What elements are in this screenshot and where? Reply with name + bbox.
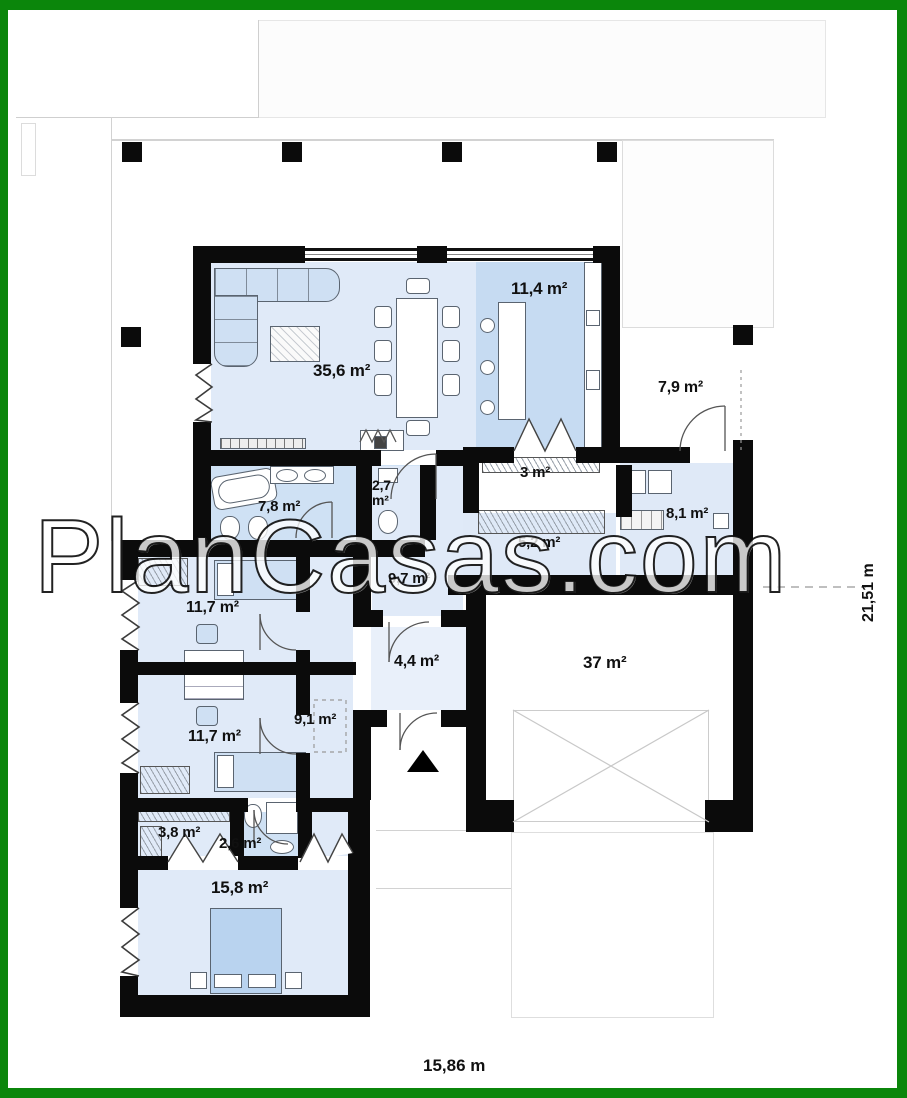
wall — [296, 650, 310, 715]
kitchen-counter — [584, 262, 602, 454]
wall — [134, 662, 356, 675]
kitchen-sink — [586, 310, 600, 326]
wall — [466, 800, 514, 832]
sideboard — [220, 438, 306, 449]
wall — [120, 773, 138, 908]
dryer — [648, 470, 672, 494]
nightstand — [285, 972, 302, 989]
desk-chair — [196, 706, 218, 726]
room-area-label-porch: 7,9 m² — [658, 380, 703, 397]
desk — [184, 650, 244, 700]
terrace-pillar — [442, 142, 462, 162]
room-area-label-vestibule: 4,4 m² — [394, 654, 439, 671]
bar-stool — [480, 318, 495, 333]
wall — [120, 995, 370, 1017]
room-floor — [312, 812, 348, 856]
room-area-label-bedroom2: 11,7 m² — [188, 729, 241, 746]
dimension-line-bottom — [118, 1092, 798, 1094]
nightstand — [190, 972, 207, 989]
window — [447, 248, 593, 261]
bar-stool — [480, 360, 495, 375]
room-area-label-garage: 37 m² — [583, 654, 626, 672]
window — [305, 248, 417, 261]
room-area-label-living: 35,6 m² — [313, 362, 370, 380]
dimension-endpoint — [114, 1089, 121, 1096]
room-area-label-wardrobe: 3,8 m² — [158, 825, 200, 841]
chair — [406, 420, 430, 436]
garage-car-space — [513, 710, 709, 822]
terrace-pillar — [121, 327, 141, 347]
terrace-pillar — [733, 325, 753, 345]
room-area-label-kitchen: 11,4 m² — [511, 280, 567, 298]
sofa — [214, 295, 258, 367]
wall — [417, 246, 447, 263]
wall — [705, 800, 753, 832]
wall — [120, 976, 138, 1017]
terrace-left-post — [21, 123, 36, 176]
dimension-label-width: 15,86 m — [423, 1056, 485, 1076]
wall — [296, 753, 310, 800]
chair — [374, 374, 392, 396]
bar-stool — [480, 400, 495, 415]
wall — [120, 798, 248, 812]
sink — [270, 840, 294, 854]
wall — [478, 447, 514, 463]
wall — [348, 800, 370, 1017]
pillow — [248, 974, 276, 988]
floor-plan-canvas: 35,6 m² 11,4 m² 7,9 m² 3 m² 2,7 m² 7,8 m… — [0, 0, 907, 1098]
sink — [276, 469, 298, 482]
wall — [441, 710, 466, 727]
wall — [576, 447, 605, 463]
sink — [304, 469, 326, 482]
terrace-edge-left — [111, 117, 112, 541]
kitchen-hob — [586, 370, 600, 390]
wall — [238, 856, 298, 870]
wardrobe-cabinet — [140, 766, 190, 794]
wall — [602, 246, 620, 456]
desk-chair — [196, 624, 218, 644]
wall — [193, 246, 211, 364]
terrace-pillar — [122, 142, 142, 162]
wall — [733, 595, 753, 800]
room-area-label-night-corridor: 9,1 m² — [294, 712, 336, 728]
chair — [442, 340, 460, 362]
dining-table — [396, 298, 438, 418]
pillow — [217, 755, 234, 788]
dimension-line-right — [900, 141, 902, 998]
chair — [374, 340, 392, 362]
roof-outline-left-box — [16, 20, 259, 118]
chair — [442, 374, 460, 396]
wall — [120, 650, 138, 703]
wall — [466, 595, 486, 832]
dimension-endpoint — [794, 1089, 801, 1096]
chair — [406, 278, 430, 294]
wall — [211, 450, 381, 466]
terrace-pillar — [597, 142, 617, 162]
corner-terrace — [622, 140, 774, 328]
driveway — [511, 832, 714, 1018]
room-area-label-shower-room: 2,6 m² — [219, 836, 261, 852]
watermark: PlanCasas.com — [34, 498, 788, 617]
room-area-label-master: 15,8 m² — [211, 879, 268, 897]
wall — [353, 710, 387, 727]
kitchen-island — [498, 302, 526, 420]
wall — [605, 447, 690, 463]
stove-cabinet — [374, 436, 387, 449]
room-area-label-pantry: 3 m² — [520, 465, 550, 481]
terrace-pillar — [282, 142, 302, 162]
shower — [266, 802, 298, 834]
dimension-endpoint — [897, 138, 904, 145]
room-floor — [624, 342, 733, 452]
entry-step-line — [376, 888, 511, 889]
chair — [442, 306, 460, 328]
entrance-arrow-icon — [407, 750, 439, 772]
coffee-table — [270, 326, 320, 362]
chair — [374, 306, 392, 328]
wall — [298, 798, 312, 858]
pillow — [214, 974, 242, 988]
dimension-label-height: 21,51 m — [860, 563, 878, 622]
dimension-endpoint — [897, 994, 904, 1001]
